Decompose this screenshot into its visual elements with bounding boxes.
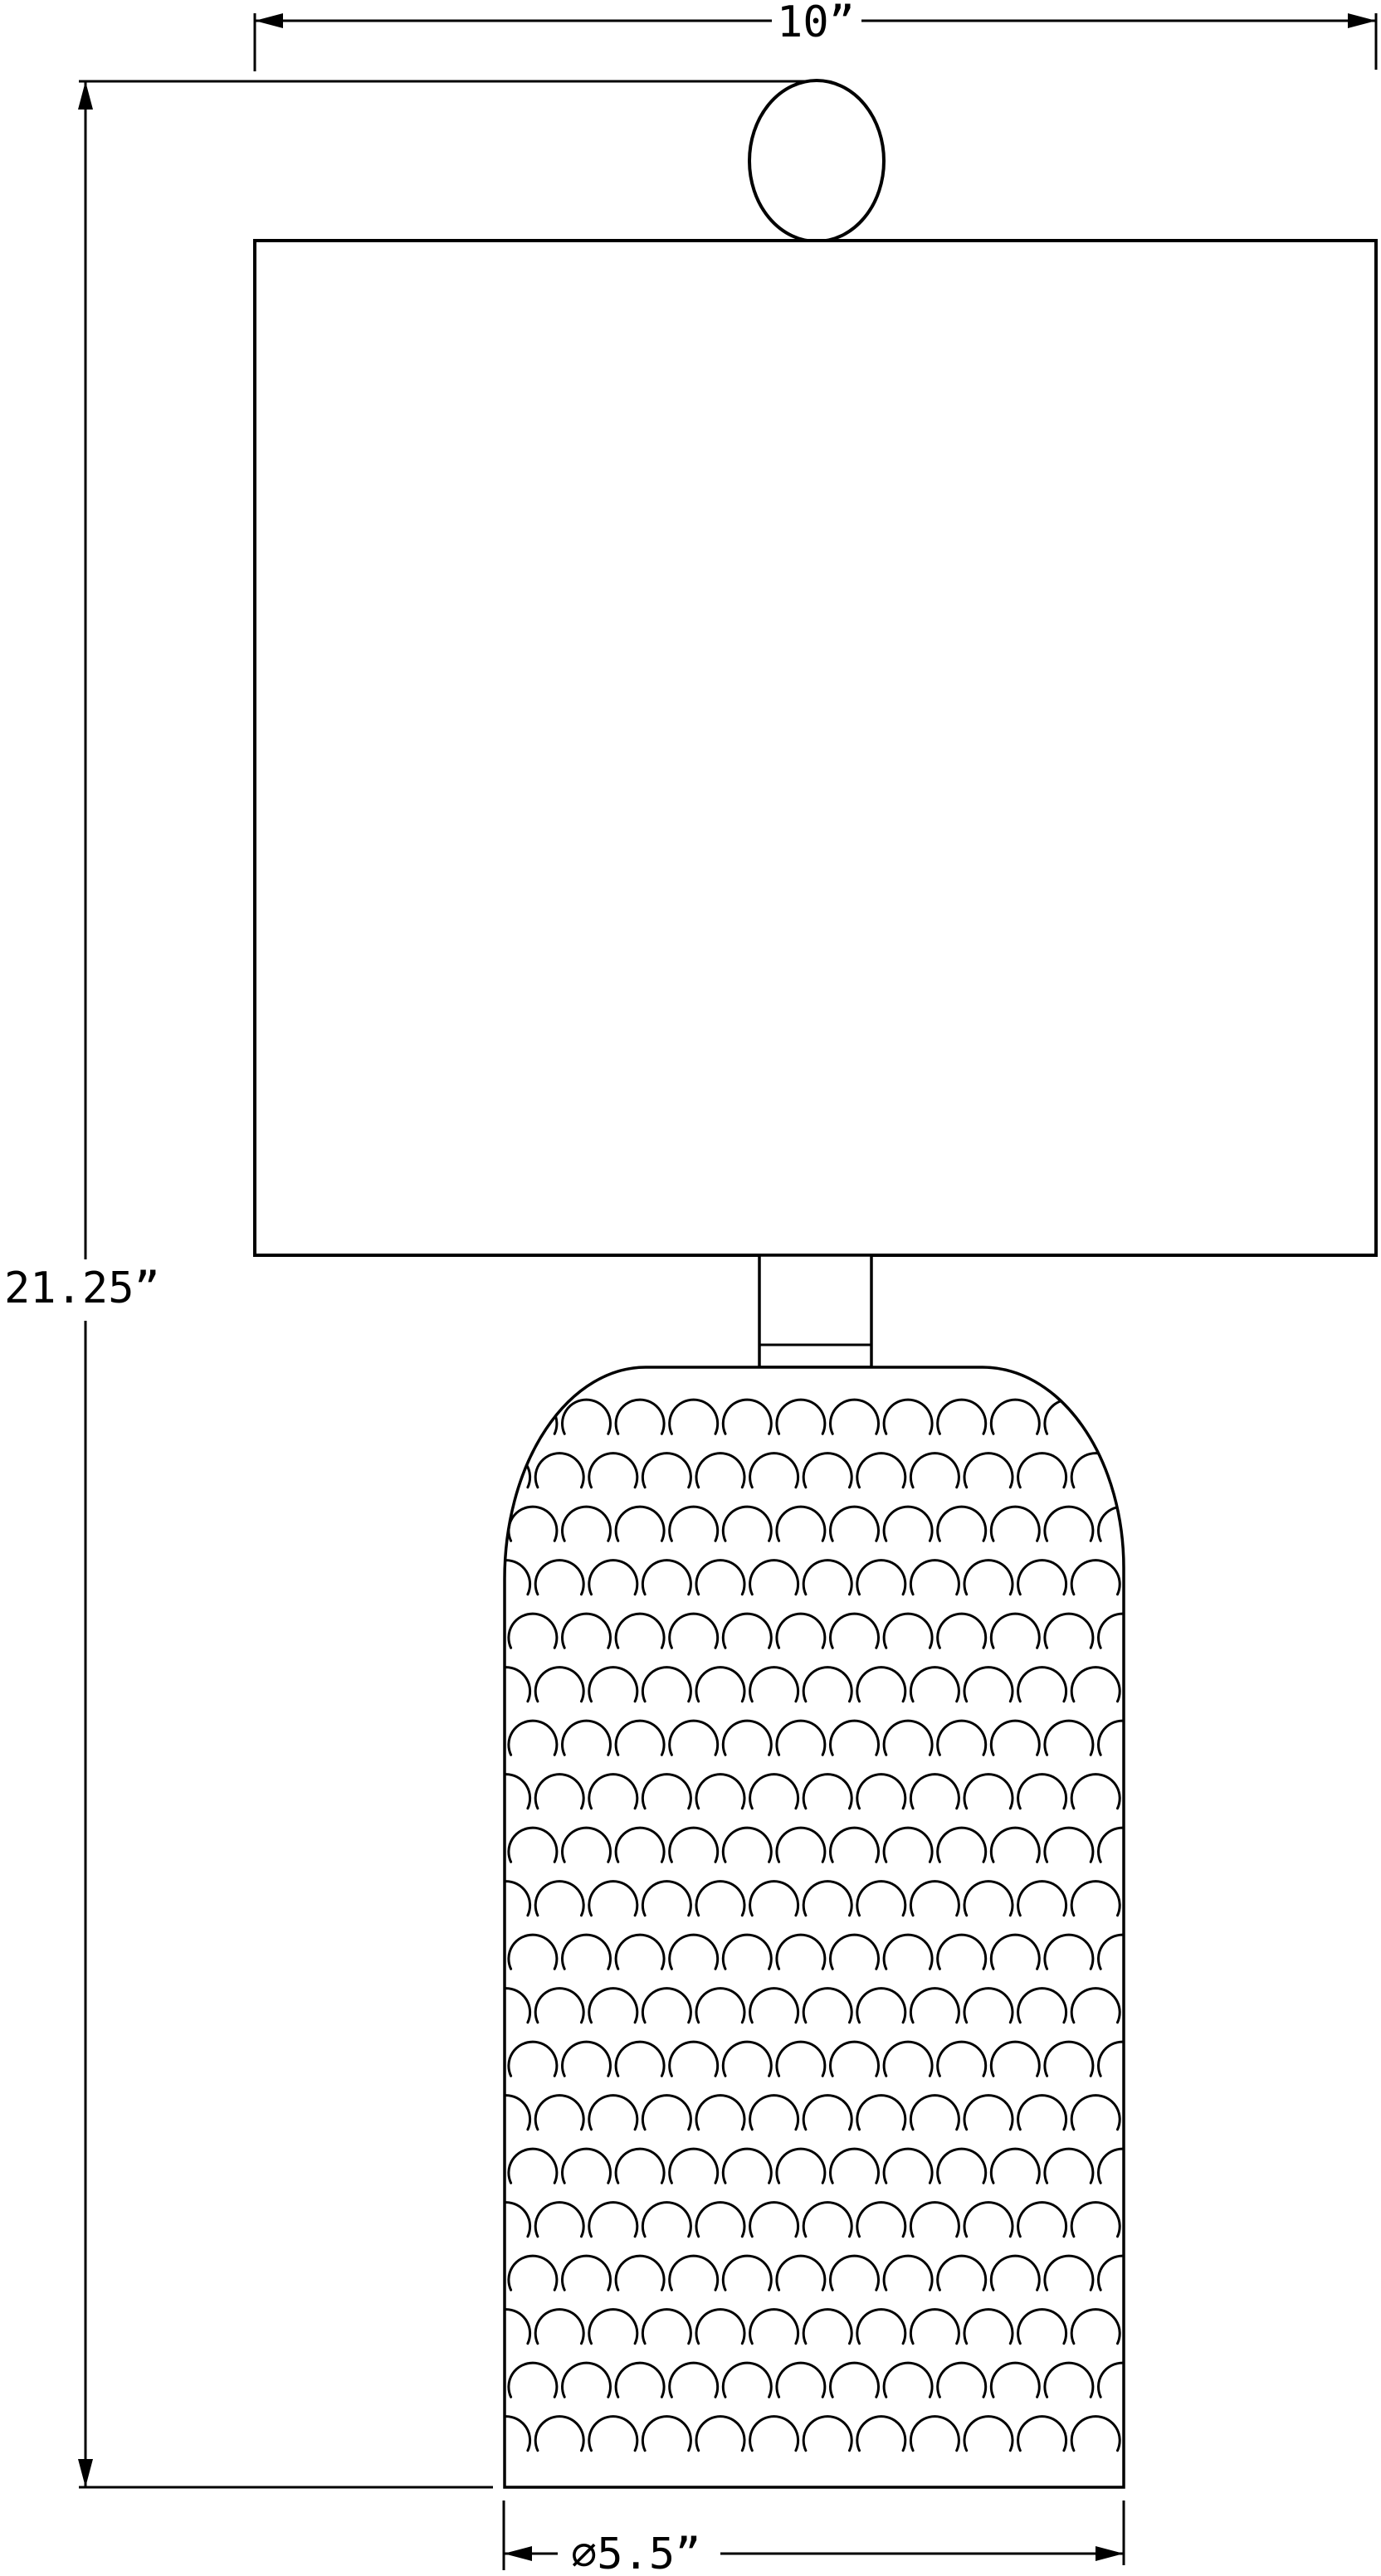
scale-arc bbox=[455, 1614, 503, 1648]
scale-arc bbox=[428, 2310, 476, 2344]
base-diameter-label: ⌀5.5” bbox=[571, 2530, 701, 2576]
scale-arc bbox=[1125, 1668, 1174, 1702]
scale-arc bbox=[1125, 1561, 1174, 1595]
scale-arc bbox=[428, 2096, 476, 2130]
scale-arc bbox=[455, 1935, 503, 1969]
scale-arc bbox=[428, 1668, 476, 1702]
scale-arc bbox=[455, 2149, 503, 2183]
scale-arc bbox=[455, 1828, 503, 1862]
neck-outline bbox=[759, 1255, 871, 1367]
diameter-arrowhead-left bbox=[504, 2546, 532, 2561]
scale-arc bbox=[428, 1989, 476, 2023]
finial-outline bbox=[749, 80, 884, 241]
scale-arc bbox=[428, 1561, 476, 1595]
scale-arc bbox=[428, 1454, 476, 1488]
scale-arc bbox=[1125, 2310, 1174, 2344]
scale-arc bbox=[428, 2417, 476, 2451]
width-arrowhead-left bbox=[255, 13, 283, 28]
scale-arc bbox=[1125, 2096, 1174, 2130]
scale-arc bbox=[1125, 2417, 1174, 2451]
scale-arc bbox=[455, 1400, 503, 1434]
scale-arc bbox=[1125, 1989, 1174, 2023]
height-arrowhead-bottom bbox=[78, 2459, 93, 2487]
scale-arc bbox=[1125, 2203, 1174, 2237]
height-arrowhead-top bbox=[78, 81, 93, 110]
scale-arc bbox=[455, 1721, 503, 1755]
scale-arc bbox=[1098, 1400, 1146, 1434]
base-diameter-dimension: ⌀5.5” bbox=[504, 2501, 1124, 2576]
scale-arc bbox=[428, 2203, 476, 2237]
width-dimension: 10” bbox=[255, 0, 1376, 71]
scale-arc bbox=[455, 1507, 503, 1541]
body-outline bbox=[505, 1367, 1124, 2487]
lamp-technical-drawing: 10” 21.25” ⌀5.5” bbox=[0, 0, 1381, 2576]
scale-arc bbox=[1125, 1775, 1174, 1809]
scale-arc bbox=[1125, 1882, 1174, 1916]
width-dimension-label: 10” bbox=[777, 0, 855, 47]
scale-arc bbox=[455, 2256, 503, 2290]
lamp-technical-drawing-page: 10” 21.25” ⌀5.5” bbox=[0, 0, 1381, 2576]
scale-arc bbox=[428, 1775, 476, 1809]
height-dimension-label: 21.25” bbox=[4, 1264, 160, 1313]
width-arrowhead-right bbox=[1348, 13, 1376, 28]
scale-arc bbox=[1125, 1454, 1174, 1488]
scale-arc bbox=[455, 2363, 503, 2397]
scale-arc bbox=[455, 2042, 503, 2076]
diameter-arrowhead-right bbox=[1096, 2546, 1124, 2561]
scale-arc bbox=[428, 1882, 476, 1916]
shade-outline bbox=[255, 241, 1376, 1255]
lamp-figure bbox=[255, 80, 1376, 2487]
